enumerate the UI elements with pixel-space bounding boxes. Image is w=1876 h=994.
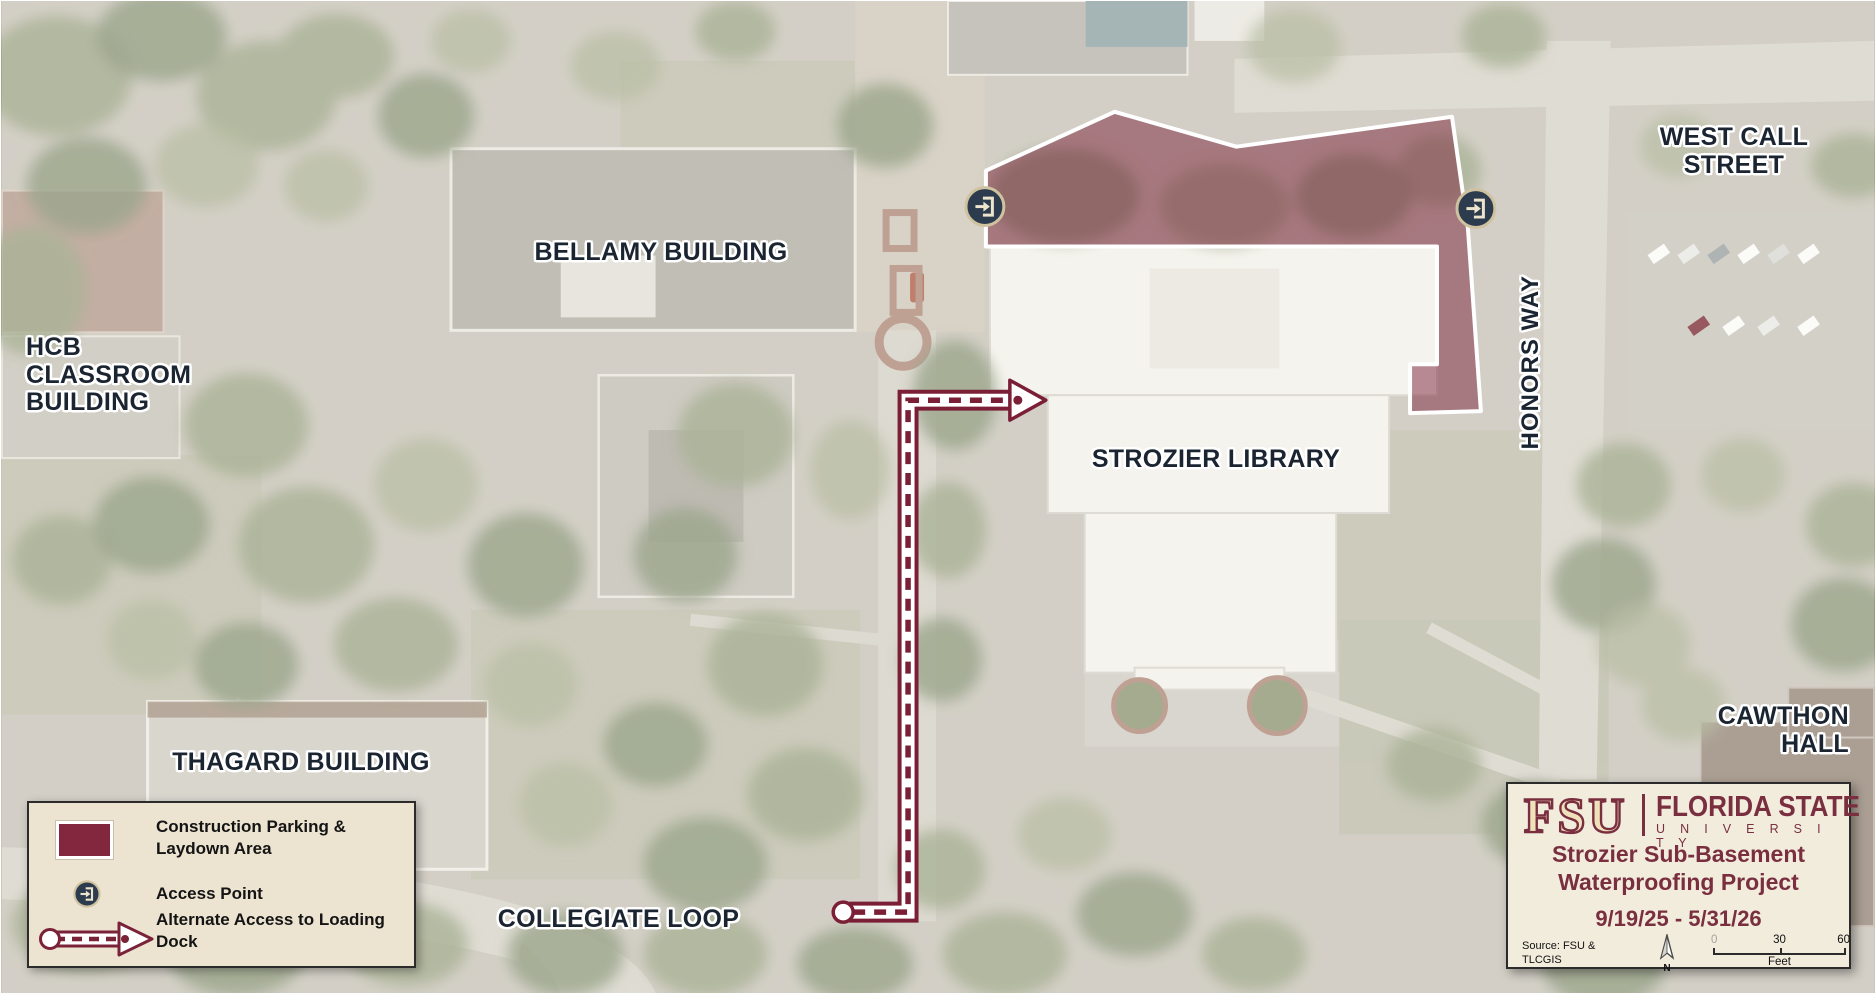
label-thagard-building: THAGARD BUILDING <box>156 749 446 777</box>
source-line1: Source: FSU & <box>1522 940 1632 954</box>
access-point-icon <box>70 877 104 911</box>
label-hcb-classroom-building: HCB CLASSROOM BUILDING <box>26 334 251 417</box>
label-west-call-street: WEST CALL STREET <box>1609 124 1859 179</box>
fsu-logo: FSU <box>1524 786 1627 844</box>
label-collegiate-loop: COLLEGIATE LOOP <box>496 906 741 934</box>
scale-mid: 30 <box>1773 934 1786 946</box>
project-title-line2: Waterproofing Project <box>1508 869 1849 897</box>
access-point-icon-west <box>966 188 1004 226</box>
logo-divider <box>1642 794 1645 836</box>
north-arrow-icon <box>1657 934 1677 960</box>
access-point-icon-east <box>1457 190 1495 228</box>
source-note: Source: FSU & TLCGIS <box>1522 940 1632 968</box>
source-line2: TLCGIS <box>1522 954 1632 968</box>
label-honors-way: HONORS WAY <box>1518 262 1544 462</box>
scale-bar: 0 30 60 Feet <box>1713 934 1846 968</box>
campus-map: BELLAMY BUILDING HCB CLASSROOM BUILDING … <box>0 0 1876 994</box>
scale-unit: Feet <box>1713 956 1846 968</box>
legend-box: Construction Parking & Laydown Area Acce… <box>27 801 416 968</box>
north-arrow: N <box>1654 934 1680 974</box>
route-start-point <box>833 902 853 922</box>
label-bellamy-building: BELLAMY BUILDING <box>521 239 801 267</box>
project-title-line1: Strozier Sub-Basement <box>1508 841 1849 869</box>
alternate-access-arrow <box>35 916 157 962</box>
project-info-box: FSU FLORIDA STATE U N I V E R S I T Y St… <box>1506 782 1851 969</box>
scale-bar-line <box>1713 948 1846 955</box>
label-strozier-library: STROZIER LIBRARY <box>1086 446 1346 474</box>
project-dates: 9/19/25 - 5/31/26 <box>1508 906 1849 932</box>
label-cawthon-hall: CAWTHON HALL <box>1701 703 1849 758</box>
construction-area-swatch <box>56 821 113 859</box>
scale-start: 0 <box>1711 934 1717 946</box>
legend-item-access-point: Access Point <box>156 883 396 905</box>
north-label: N <box>1654 963 1680 974</box>
scale-end: 60 <box>1837 934 1850 946</box>
project-title: Strozier Sub-Basement Waterproofing Proj… <box>1508 841 1849 896</box>
legend-item-construction: Construction Parking & Laydown Area <box>156 816 404 860</box>
legend-item-alternate-access: Alternate Access to Loading Dock <box>156 909 408 953</box>
wordmark-line1: FLORIDA STATE <box>1656 791 1860 824</box>
